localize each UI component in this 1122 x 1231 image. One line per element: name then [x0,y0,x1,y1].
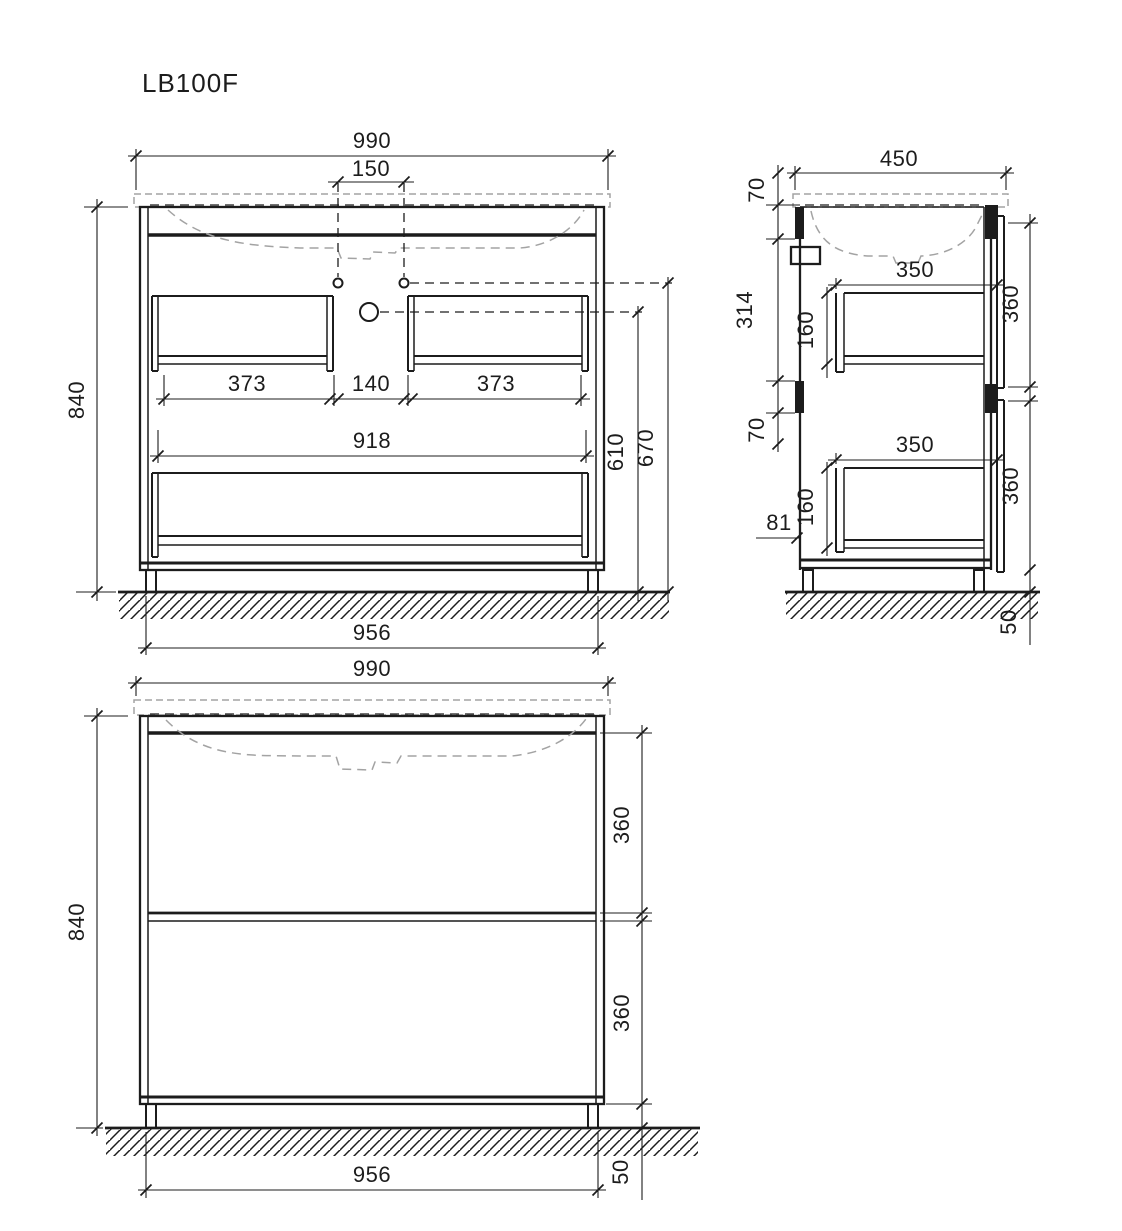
dim-faucet-spacing: 150 [352,156,390,181]
dim-front-open-height: 840 [64,381,89,419]
dim-drawer-gap: 140 [352,371,390,396]
dim-drawer-wide: 918 [353,428,391,453]
dim-depth: 450 [880,146,918,171]
dim-mid-offset: 70 [744,417,769,442]
dim-drawer-depth-top: 350 [896,257,934,282]
faucet-hole-left [334,279,343,288]
dim-front-top: 360 [998,285,1023,323]
dim-drawer-left: 373 [228,371,266,396]
dim-upper-span: 314 [732,291,757,329]
dim-side-leg: 50 [996,609,1021,634]
side-leg-left [803,570,813,592]
side-leg-right [974,570,984,592]
faucet-hole-right [400,279,409,288]
dim-closed-leg: 50 [608,1159,633,1184]
dim-closed-width: 990 [353,656,391,681]
vanity-dimension-drawing: LB100F [0,0,1122,1231]
dim-faucet-height: 670 [633,429,658,467]
mount-bracket-top [795,207,804,239]
side-drawer-fronts [985,205,1004,572]
drain-hole [360,303,378,321]
ground-hatch [119,593,669,619]
countertop [134,194,610,207]
front-view-closed: 990 840 360 360 50 956 [64,656,700,1200]
dim-drawer-right: 373 [477,371,515,396]
dim-closed-base: 956 [353,1162,391,1187]
drawer-box-lower [152,473,588,557]
dim-front-bottom: 360 [998,467,1023,505]
closed-countertop [134,700,610,715]
side-drawer-box-upper [836,293,984,372]
dim-front-open-width: 990 [353,128,391,153]
dim-closed-height: 840 [64,903,89,941]
dim-front-open-base: 956 [353,620,391,645]
front-view-open: 990 150 840 373 140 373 [64,128,674,655]
dim-top-offset: 70 [744,177,769,202]
drawing-title: LB100F [142,68,239,98]
dim-bottom-gap: 81 [766,510,791,535]
leg-left [146,570,156,592]
drawer-box-upper-left [152,296,333,371]
side-basin-outline [811,211,984,263]
leg-right [588,570,598,592]
dim-drawer-depth-bottom: 350 [896,432,934,457]
mount-bracket-mid [795,381,804,413]
dim-closed-front-bottom: 360 [609,994,634,1032]
drawer-box-upper-right [408,296,588,371]
closed-ground-hatch [106,1129,698,1156]
dim-drain-height: 610 [603,433,628,471]
dim-closed-front-top: 360 [609,806,634,844]
closed-carcass [140,716,604,1104]
side-clip [791,247,820,264]
closed-basin-outline [166,719,586,770]
closed-leg-left [146,1104,156,1128]
closed-leg-right [588,1104,598,1128]
side-view: 450 70 314 70 350 160 [732,146,1040,645]
side-drawer-box-lower [836,468,984,552]
dim-drawer-height-top: 160 [793,311,818,349]
dim-drawer-height-bottom: 160 [793,488,818,526]
technical-drawing-page: LB100F [0,0,1122,1231]
front-closed-dimensions: 990 840 360 360 50 956 [64,656,652,1200]
